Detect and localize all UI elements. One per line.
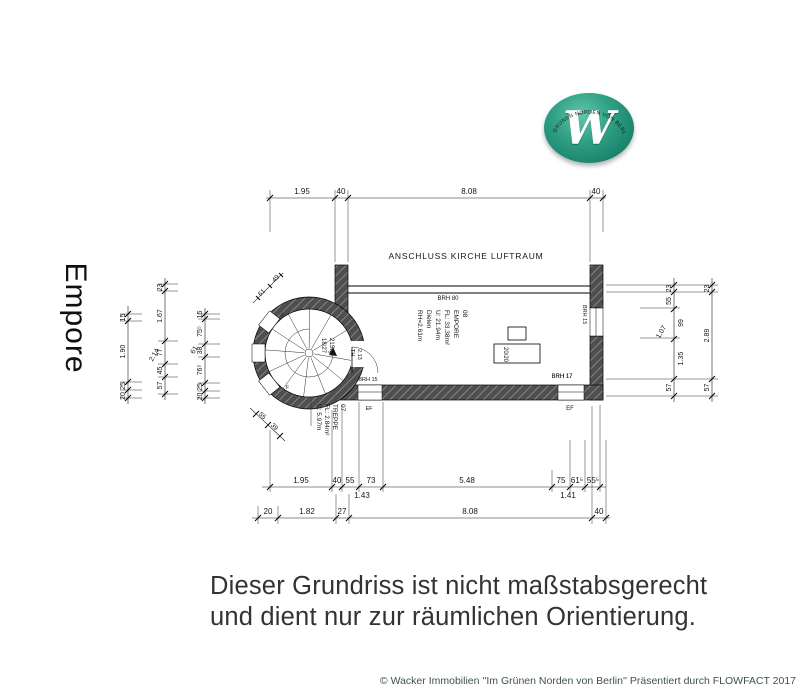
dim-label: 57 bbox=[666, 384, 673, 392]
dim-label: 76⁵ bbox=[197, 365, 204, 376]
stair-center-post bbox=[305, 349, 313, 357]
dim-label: 8.08 bbox=[462, 507, 478, 516]
dim-label: 5.48 bbox=[459, 476, 475, 485]
logo-arc-text: IM GRÜNEN NORDEN VON BERLIN bbox=[544, 93, 634, 163]
dim-label: 49 bbox=[271, 274, 281, 284]
room-floor: Dielen bbox=[425, 310, 432, 329]
window-bottom-right bbox=[558, 385, 584, 400]
ef-right-label: EF bbox=[566, 406, 574, 412]
room-height: RH=2.61m bbox=[416, 310, 423, 341]
stair-room-label-block: 07 TREPPE FL: 2.84m² U: 5.97m bbox=[315, 404, 346, 436]
walls bbox=[253, 265, 603, 409]
dim-label: 8.08 bbox=[461, 187, 477, 196]
dim-label: 1.95 bbox=[293, 476, 309, 485]
dim-label: 1.35 bbox=[678, 352, 685, 366]
dimension-lines bbox=[128, 198, 712, 518]
dim-label: 75 bbox=[557, 476, 566, 485]
dim-label: 1.82 bbox=[299, 507, 315, 516]
dim-diag-label: 1.07 bbox=[655, 325, 668, 340]
brh80-label: BRH 80 bbox=[437, 296, 459, 302]
tower-window-2 bbox=[252, 344, 265, 362]
room-area: FL: 33.38m² bbox=[443, 310, 450, 346]
disclaimer-line2: und dient nur zur räumlichen Orientierun… bbox=[210, 602, 707, 633]
dim-label: 55 bbox=[257, 411, 267, 421]
dim-label: 57 bbox=[704, 384, 711, 392]
dim-label: 57 bbox=[157, 382, 164, 390]
f2-label: F bbox=[286, 385, 289, 391]
svg-text:IM GRÜNEN NORDEN VON BERLIN: IM GRÜNEN NORDEN VON BERLIN bbox=[544, 93, 627, 136]
top-dimension-labels: 1.95 40 8.08 40 bbox=[294, 187, 601, 196]
brh17-label-text: BRH 17 bbox=[551, 374, 573, 380]
window-right-wall bbox=[590, 308, 603, 336]
bottom-dimension-labels-row2: 20 1.82 27 8.08 40 bbox=[264, 507, 604, 516]
disclaimer-text: Dieser Grundriss ist nicht maßstabsgerec… bbox=[210, 571, 707, 633]
dimension-extension-lines bbox=[120, 190, 718, 524]
dim-label: 55⁵ bbox=[587, 476, 599, 485]
room-perimeter: U: 21.94m bbox=[434, 310, 441, 340]
room-name: EMPORE bbox=[452, 310, 459, 339]
stair-room-number: 07 bbox=[339, 404, 346, 412]
dim-label: 61⁵ bbox=[571, 476, 583, 485]
stair-note-line1: 21Stg bbox=[328, 338, 334, 354]
dimension-ticks bbox=[125, 195, 715, 521]
stair-room-area: FL: 2.84m² bbox=[323, 404, 330, 436]
dim-sub-label: 1.43 bbox=[354, 491, 370, 500]
dim-label: 23 bbox=[704, 285, 711, 293]
dim-label: 25 bbox=[120, 382, 127, 390]
dim-label: 15 bbox=[197, 311, 204, 319]
dim-label: 73 bbox=[367, 476, 376, 485]
dim-label: 39 bbox=[269, 422, 279, 432]
room-number: 08 bbox=[461, 310, 468, 318]
door-note-line1: 2.13 bbox=[356, 349, 362, 360]
copyright-footer: © Wacker Immobilien ''Im Grünen Norden v… bbox=[380, 675, 796, 687]
dim-label: 1.67 bbox=[157, 309, 164, 323]
plan-header-label: ANSCHLUSS KIRCHE LUFTRAUM bbox=[388, 251, 543, 261]
dim-label: 1.90 bbox=[120, 345, 127, 359]
dim-label: 20 bbox=[264, 507, 273, 516]
f1-label: F bbox=[281, 313, 284, 319]
stair-room-perimeter: U: 5.97m bbox=[315, 404, 322, 430]
dim-label: 55 bbox=[666, 297, 673, 305]
bottom-dimension-labels-row1: 1.95 40 55 73 5.48 75 61⁵ 55⁵ 1.43 1.41 bbox=[293, 476, 599, 500]
page-title-vertical: Empore bbox=[58, 262, 92, 373]
dim-label: 27 bbox=[338, 507, 347, 516]
dim-label: 1.95 bbox=[294, 187, 310, 196]
stair-note-line2: 18/27 bbox=[320, 338, 326, 354]
pillar-box bbox=[494, 344, 540, 363]
logo-motto: IM GRÜNEN NORDEN VON BERLIN bbox=[544, 93, 627, 136]
dim-label: 75⁵ bbox=[197, 326, 204, 337]
window-bottom-left bbox=[358, 385, 382, 400]
dim-label: 99 bbox=[678, 319, 685, 327]
dim-label: 61 bbox=[257, 288, 267, 298]
disclaimer-line1: Dieser Grundriss ist nicht maßstabsgerec… bbox=[210, 571, 707, 602]
brh15-window-label: BRH 15 bbox=[358, 377, 377, 383]
ef-left-label: EF bbox=[365, 406, 373, 412]
dim-label: 40 bbox=[592, 187, 601, 196]
dim-label: 55 bbox=[346, 476, 355, 485]
dim-label: 2.89 bbox=[704, 329, 711, 343]
railing bbox=[348, 286, 590, 293]
left-dimension-chains: 15 1.90 25 20 23 1.67 77 45 57 2.14 15 7… bbox=[120, 284, 204, 401]
brh15-right-label: BRH 15 bbox=[581, 305, 587, 324]
company-logo: W IM GRÜNEN NORDEN VON BERLIN bbox=[544, 93, 634, 163]
dim-label: 20 bbox=[120, 392, 127, 400]
dim-label: 23 bbox=[157, 284, 164, 292]
pillar-and-box bbox=[494, 327, 540, 363]
dim-label: 40 bbox=[337, 187, 346, 196]
room-label-block: 08 EMPORE FL: 33.38m² U: 21.94m Dielen R… bbox=[416, 310, 468, 346]
dim-sub-label: 1.41 bbox=[560, 491, 576, 500]
wall-right-upper bbox=[590, 265, 603, 308]
dim-label: 20 bbox=[197, 393, 204, 401]
dim-label: 25 bbox=[197, 383, 204, 391]
dim-label: 40 bbox=[333, 476, 342, 485]
door-note-line2: TH bbox=[349, 349, 355, 356]
small-pillar bbox=[508, 327, 526, 340]
dim-label: 45 bbox=[157, 367, 164, 375]
dim-label: 23 bbox=[666, 285, 673, 293]
pillar-label: 20/20 bbox=[502, 347, 508, 363]
dim-label: 40 bbox=[595, 507, 604, 516]
dim-label: 15 bbox=[120, 314, 127, 322]
